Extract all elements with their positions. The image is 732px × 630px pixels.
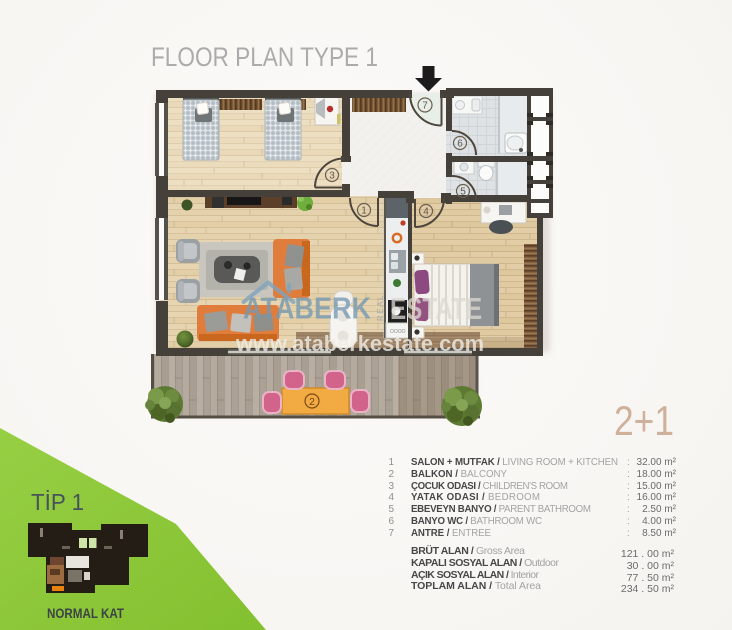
svg-text:www.ataberkestate.com: www.ataberkestate.com	[235, 331, 484, 356]
svg-text:2: 2	[309, 396, 315, 408]
svg-text:YATAK ODASI / BEDROOM: YATAK ODASI / BEDROOM	[411, 492, 540, 503]
svg-text:BALKON / BALCONY: BALKON / BALCONY	[411, 469, 508, 480]
svg-text:FLOOR PLAN TYPE 1: FLOOR PLAN TYPE 1	[151, 42, 378, 72]
svg-text:5: 5	[388, 504, 394, 515]
svg-text:EBEVEYN BANYO / PARENT BATHROO: EBEVEYN BANYO / PARENT BATHROOM	[411, 504, 591, 515]
svg-text:ESTATE: ESTATE	[390, 291, 482, 326]
svg-text::: :	[627, 516, 630, 527]
svg-text:6: 6	[457, 139, 463, 150]
svg-text:SALON + MUTFAK / LIVING ROOM +: SALON + MUTFAK / LIVING ROOM + KITCHEN	[411, 457, 618, 468]
svg-text:TİP 1: TİP 1	[31, 489, 84, 515]
svg-text:4: 4	[423, 207, 429, 218]
svg-text:5: 5	[460, 187, 466, 198]
svg-text:KAPALI SOSYAL ALAN / Outdoor: KAPALI SOSYAL ALAN / Outdoor	[411, 557, 560, 569]
svg-text:3: 3	[329, 171, 335, 182]
svg-text::: :	[627, 492, 630, 503]
svg-text:4: 4	[388, 492, 394, 503]
svg-text:1: 1	[361, 206, 367, 217]
svg-text:TOPLAM ALAN / Total Area: TOPLAM ALAN / Total Area	[411, 580, 541, 592]
svg-text:121 . 00 m²: 121 . 00 m²	[621, 548, 675, 560]
svg-text:234 . 50 m²: 234 . 50 m²	[621, 583, 675, 595]
svg-text:1: 1	[388, 457, 394, 468]
svg-text:BRÜT ALAN / Gross Area: BRÜT ALAN / Gross Area	[411, 544, 525, 557]
svg-text::: :	[627, 469, 630, 480]
svg-text:ÇOCUK ODASI / CHILDREN'S ROOM: ÇOCUK ODASI / CHILDREN'S ROOM	[411, 481, 568, 492]
svg-text:30 . 00 m²: 30 . 00 m²	[627, 560, 675, 572]
svg-text:2: 2	[388, 469, 394, 480]
svg-text:18.00 m²: 18.00 m²	[637, 469, 677, 480]
svg-text::: :	[627, 504, 630, 515]
svg-text:16.00 m²: 16.00 m²	[637, 492, 677, 503]
svg-text:NORMAL KAT: NORMAL KAT	[47, 605, 124, 621]
svg-text:3: 3	[388, 481, 394, 492]
svg-text:4.00 m²: 4.00 m²	[642, 516, 677, 527]
svg-text:2+1: 2+1	[614, 397, 674, 444]
svg-text:6: 6	[388, 516, 394, 527]
svg-text:7: 7	[422, 101, 428, 112]
svg-text::: :	[627, 481, 630, 492]
svg-text:7: 7	[388, 528, 394, 539]
svg-text::: :	[627, 457, 630, 468]
svg-text:ATABERK: ATABERK	[243, 291, 372, 326]
svg-text:BANYO WC / BATHROOM WC: BANYO WC / BATHROOM WC	[411, 516, 542, 527]
svg-text:15.00 m²: 15.00 m²	[637, 481, 677, 492]
svg-text::: :	[627, 528, 630, 539]
svg-text:32.00 m²: 32.00 m²	[637, 457, 677, 468]
svg-text:2.50 m²: 2.50 m²	[642, 504, 677, 515]
svg-text:REAL: REAL	[376, 294, 385, 321]
svg-text:ANTRE / ENTREE: ANTRE / ENTREE	[411, 528, 492, 539]
svg-text:8.50 m²: 8.50 m²	[642, 528, 677, 539]
